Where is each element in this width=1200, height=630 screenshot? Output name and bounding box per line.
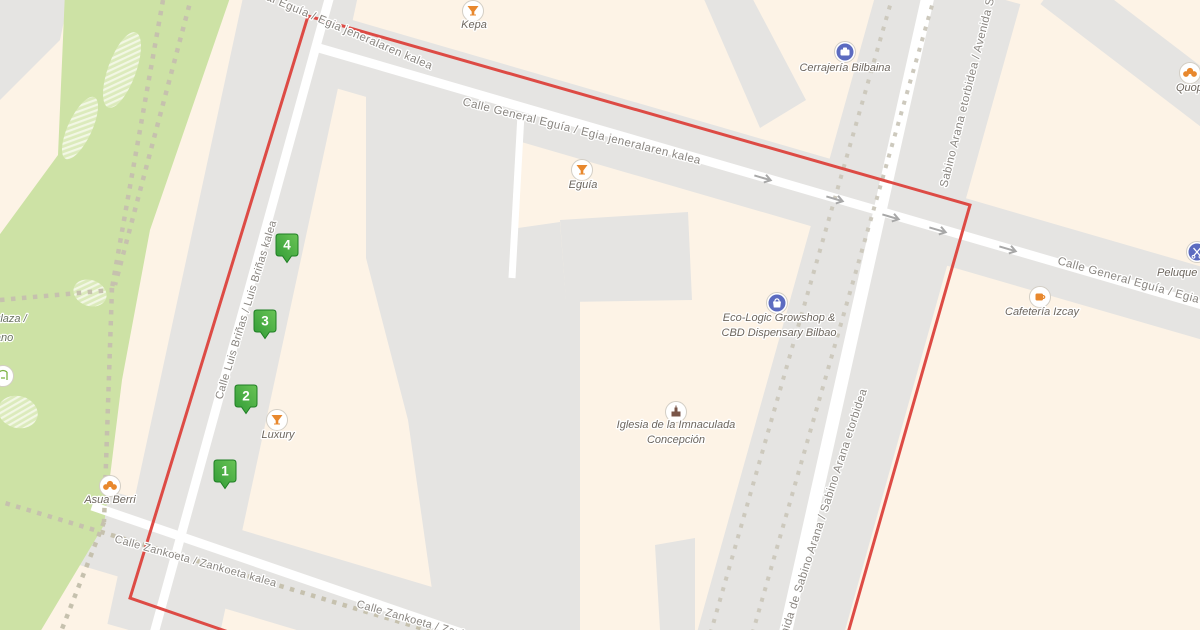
poi-label-cafeteria: Cafetería Izcay	[1005, 306, 1080, 318]
poi-label-peluqueria: Peluque	[1157, 267, 1197, 279]
poi-label-iglesia-line2: Concepción	[647, 434, 705, 446]
poi-label-quop: Quop	[1176, 82, 1200, 94]
poi-label-eguia-bar: Eguía	[569, 179, 598, 191]
block-central-step	[560, 212, 692, 302]
cocktail-icon	[572, 160, 593, 181]
coffee-cup-icon	[1030, 287, 1051, 308]
poi-label-cerrajeria: Cerrajería Bilbaina	[799, 62, 890, 74]
park-label-line1: Plaza /	[0, 313, 28, 325]
shopping-bag-icon	[767, 293, 788, 314]
briefcase-icon	[835, 42, 856, 63]
poi-label-ecologic-line1: Eco-Logic Growshop &	[723, 312, 836, 324]
park-label-line2: llano	[0, 332, 13, 344]
block-bottom-center	[655, 538, 695, 630]
marker-3-number: 3	[261, 314, 269, 329]
marker-2-number: 2	[242, 389, 250, 404]
marker-1-number: 1	[221, 464, 229, 479]
poi-label-kepa: Kepa	[461, 19, 487, 31]
marker-4-number: 4	[283, 238, 291, 253]
poi-label-asua-berri: Asua Berri	[83, 494, 136, 506]
cocktail-icon	[267, 410, 288, 431]
poi-label-iglesia-line1: Iglesia de la Imnaculada	[617, 419, 736, 431]
croissant-icon	[1180, 63, 1200, 84]
map-canvas[interactable]: Calle General Eguía / Egia jeneralaren k…	[0, 0, 1200, 630]
poi-label-luxury: Luxury	[261, 429, 296, 441]
poi-label-ecologic-line2: CBD Dispensary Bilbao	[722, 327, 837, 339]
